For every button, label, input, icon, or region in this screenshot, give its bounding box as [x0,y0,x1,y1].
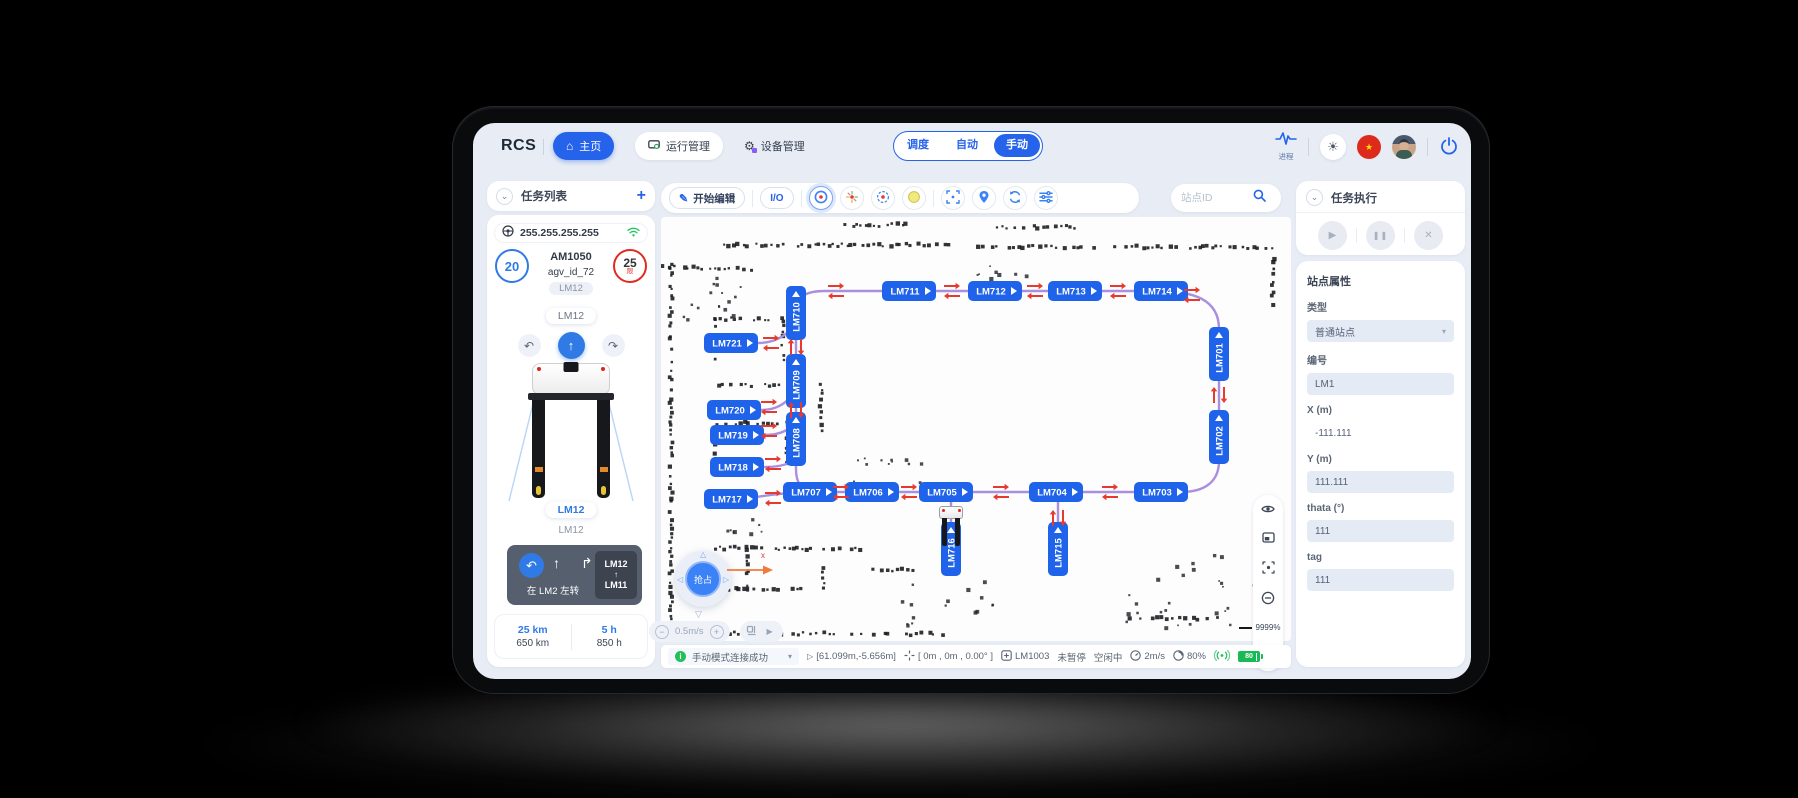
map-wall-dot [719,546,721,548]
svg-text:LM717: LM717 [712,495,742,506]
map-wall-dot [871,568,874,571]
map-wall-dot [873,225,875,227]
path-direction-arrow [828,283,844,290]
map-station-LM714[interactable]: LM714 [1134,281,1188,301]
map-wall-dot [809,633,812,636]
map-wall-dot [724,268,726,270]
pause-state: 未暂停 [1057,650,1086,664]
task-play-button[interactable]: ▶ [1318,221,1347,250]
map-speck [733,531,735,533]
speed-controls: − 0.5m/s + ▶ [649,621,783,642]
joy-left-icon[interactable]: ◁ [677,575,683,584]
gauge-icon [1173,650,1184,664]
action-forward-button[interactable]: ↑ [553,555,560,571]
map-wall-dot [780,316,784,320]
monitor-icon [648,140,660,153]
map-wall-dot [1055,247,1057,249]
map-wall-dot [932,633,934,635]
map-wall-dot [1042,226,1045,229]
map-station-LM719[interactable]: LM719 [710,425,764,445]
map-wall-dot [1054,224,1058,228]
map-speck [718,305,720,307]
map-wall-dot [1214,244,1217,247]
path-direction-arrow [944,293,960,300]
map-wall-dot [670,451,673,454]
status-bar: i 手动模式连接成功 ▾ ▷ [61.099m,-5.656m] [ 0m , … [661,645,1291,668]
filter-button[interactable] [1034,186,1058,210]
tag-field[interactable] [1307,569,1454,591]
map-wall-dot [1038,244,1042,248]
map-wall-dot [1165,617,1169,621]
map-speck [734,296,737,299]
map-wall-dot [896,568,899,571]
map-wall-dot [896,221,900,225]
add-task-button[interactable]: + [637,187,646,205]
map-wall-dot [1272,268,1275,271]
app-logo: RCS [501,137,536,155]
collapse-chevron-icon[interactable]: ⌄ [496,188,513,205]
map-speck [980,596,983,599]
map-wall-dot [670,524,673,527]
map-wall-dot [669,563,672,566]
map-wall-dot [947,243,950,246]
start-edit-button[interactable]: ✎ 开始编辑 [669,187,745,209]
map-wall-dot [836,245,839,248]
forklift-fork-left [532,400,545,498]
map-wall-dot [1171,617,1174,620]
status-message-dropdown[interactable]: i 手动模式连接成功 ▾ [668,648,799,665]
map-wall-dot [1146,246,1149,249]
map-wall-dot [671,361,673,363]
joy-up-icon[interactable]: △ [700,550,706,559]
map-speck [911,622,913,624]
power-button[interactable] [1439,136,1459,159]
path-direction-arrow [798,339,805,355]
map-wall-dot [670,263,673,266]
user-avatar[interactable] [1392,135,1416,159]
map-wall-dot [928,631,932,635]
mode-auto[interactable]: 自动 [956,132,978,159]
path-direction-arrow [993,494,1009,501]
map-wall-dot [750,385,753,388]
map-speck [1164,609,1167,612]
map-wall-dot [782,243,785,246]
process-button[interactable]: 进程 [1275,132,1297,162]
map-speck [978,273,980,275]
map-wall-dot [976,245,980,249]
route-box: LM12 ↑ LM11 [595,551,637,599]
signal-icon [1214,650,1230,664]
map-wall-dot [1169,244,1173,248]
theta-label: thata (°) [1307,503,1454,514]
map-wall-dot [670,615,673,618]
task-list-header: ⌄ 任务列表 + [487,181,655,211]
map-speck [715,277,718,280]
map-station-LM721[interactable]: LM721 [704,333,758,353]
map-wall-dot [669,416,672,419]
map-wall-dot [723,244,725,246]
y-field[interactable] [1307,471,1454,493]
task-exec-chevron-icon[interactable]: ⌄ [1306,189,1323,206]
map-wall-dot [670,527,674,531]
map-wall-dot [1079,245,1082,248]
mode-dispatch[interactable]: 调度 [907,132,929,159]
map-wall-dot [713,452,717,456]
map-speck [730,529,732,531]
map-speck [697,307,700,310]
map-wall-dot [903,222,907,226]
map-wall-dot [783,359,785,361]
svg-text:LM708: LM708 [792,428,803,458]
map-wall-dot [670,555,673,558]
nav-devices-label: 设备管理 [761,138,805,154]
nav-operations[interactable]: 运行管理 [635,132,723,160]
path-direction-arrow [763,345,779,352]
map-speck [715,283,719,287]
map-speck [1189,623,1192,626]
map-speck [910,603,913,606]
map-wall-dot [760,546,763,549]
map-wall-dot [744,383,746,385]
map-wall-dot [1255,246,1258,249]
map-station-LM706[interactable]: LM706 [845,482,899,502]
forklift-body [528,393,614,400]
map-wall-dot [1013,226,1016,229]
map-wall-dot [823,582,825,584]
map-wall-dot [1027,244,1030,247]
io-button[interactable]: I/O [760,187,793,209]
center-focus-icon[interactable] [1262,561,1275,576]
map-station-LM707[interactable]: LM707 [783,482,837,502]
zoom-out-icon[interactable] [1261,591,1275,607]
map-speck [908,463,910,465]
map-station-LM715[interactable]: LM715 [1048,522,1068,576]
speed-plus-button[interactable]: + [710,625,724,639]
map-wall-dot [668,591,672,595]
type-value: 普通站点 [1315,324,1442,339]
theta-field[interactable] [1307,520,1454,542]
map-wall-dot [736,266,740,270]
action-turn-left-button[interactable]: ↶ [519,553,544,578]
map-wall-dot [1131,245,1134,248]
map-station-LM712[interactable]: LM712 [968,281,1022,301]
nav-home-label: 主页 [579,138,601,154]
map-wall-dot [809,547,812,550]
map-wall-dot [917,242,921,246]
vehicle-tag: LM12 [549,282,593,295]
location-pin-icon [978,190,990,207]
svg-text:LM706: LM706 [853,488,883,499]
map-speck [761,531,763,533]
map-wall-dot [714,548,717,551]
rays-layer-icon [845,190,859,207]
map-wall-dot [1142,246,1146,250]
map-wall-dot [762,422,765,425]
map-wall-dot [1046,225,1049,228]
map-wall-dot [780,344,782,346]
map-wall-dot [782,331,785,334]
svg-text:LM721: LM721 [712,339,742,350]
layer-zone-button[interactable] [902,186,926,210]
waveform-icon [1275,132,1297,150]
theme-button[interactable]: ☀ [1320,134,1346,160]
path-direction-arrow [944,283,960,290]
map-wall-dot [670,433,672,435]
tag-label: tag [1307,552,1454,563]
map-wall-dot [776,588,780,592]
map-wall-dot [776,422,779,425]
map-wall-dot [898,243,901,246]
map-wall-dot [996,226,998,228]
map-speck [912,584,914,586]
map-wall-dot [745,244,749,248]
map-wall-dot [740,383,743,386]
map-wall-dot [668,486,672,490]
map-wall-dot [735,242,739,246]
map-wall-dot [1216,616,1219,619]
map-wall-dot [670,274,672,276]
path-direction-arrow [1110,293,1126,300]
map-wall-dot [1072,246,1075,249]
map-wall-dot [764,383,766,385]
station-search-input[interactable] [1181,192,1253,204]
map-station-LM720[interactable]: LM720 [707,400,761,420]
map-wall-dot [767,319,769,321]
map-wall-dot [1189,247,1192,250]
fork-play-button[interactable]: ▶ [763,625,777,639]
battery-circle: 20 [495,249,529,283]
steering-wheel-icon [502,224,514,242]
map-station-LM702[interactable]: LM702 [1209,410,1229,464]
map-wall-dot [838,546,842,550]
map-wall-dot [766,588,768,590]
map-wall-dot [841,243,843,245]
current-station: LM1003 [1001,650,1049,664]
forklift-fork-right [597,400,610,498]
map-wall-dot [756,423,758,425]
map-wall-dot [1194,246,1197,249]
map-wall-dot [670,518,674,522]
map-robot[interactable] [939,506,963,570]
map-wall-dot [1076,246,1079,249]
map-speck [905,458,909,462]
task-stop-button[interactable]: ✕ [1414,221,1443,250]
map-station-LM709[interactable]: LM709 [786,354,806,408]
map-speck [1127,612,1131,616]
id-label: 编号 [1307,352,1454,367]
map-wall-dot [669,306,672,309]
map-speck [977,274,979,276]
map-station-LM705[interactable]: LM705 [919,482,973,502]
map-wall-dot [832,243,834,245]
map-wall-dot [1012,246,1015,249]
map-wall-dot [797,633,800,636]
turn-left-button[interactable]: ↶ [518,334,541,357]
seize-button[interactable]: 抢占 [685,561,721,597]
path-direction-arrow [1102,494,1118,501]
id-field[interactable] [1307,373,1454,395]
map-wall-dot [821,392,824,395]
battery-indicator: 80 [1238,651,1260,662]
svg-text:LM715: LM715 [1054,538,1065,568]
path-direction-arrow [765,456,781,463]
map-wall-dot [670,406,673,409]
map-wall-dot [867,223,871,227]
action-turn-right-button[interactable]: ↱ [581,555,593,572]
map-wall-dot [719,317,722,320]
map-speck [888,463,890,465]
eye-icon[interactable] [1261,504,1275,516]
map-station-LM710[interactable]: LM710 [786,286,806,340]
map-wall-dot [775,547,777,549]
map-speck [1220,582,1223,585]
map-speck [723,308,727,312]
x-field[interactable] [1307,422,1454,444]
map-wall-dot [820,423,824,427]
task-list-title: 任务列表 [521,188,567,204]
map-wall-dot [1065,224,1068,227]
stat-h-current: 5 h [602,624,617,636]
layer-station-button[interactable] [809,186,833,210]
map-speck [966,588,970,592]
map-wall-dot [872,243,875,246]
map-wall-dot [742,587,746,591]
map-wall-dot [819,398,823,402]
map-speck [906,624,909,627]
map-station-LM718[interactable]: LM718 [710,457,764,477]
map-wall-dot [944,243,947,246]
map-wall-dot [807,244,811,248]
viewport: RCS ⌂ 主页 运行管理 ⚙ 设备管理 调度 自动 手动 [0,0,1798,798]
station-props-title: 站点属性 [1307,273,1454,289]
locate-button[interactable] [972,186,996,210]
map-wall-dot [668,571,672,575]
map-wall-dot [1220,245,1222,247]
map-wall-dot [1271,260,1275,264]
minimap-icon[interactable] [1262,532,1275,545]
layer-rays-button[interactable] [840,186,864,210]
map-wall-dot [696,266,699,269]
mode-manual[interactable]: 手动 [994,134,1040,157]
map-wall-dot [671,600,674,603]
map-wall-dot [1031,244,1034,247]
refresh-button[interactable] [1003,186,1027,210]
nav-home[interactable]: ⌂ 主页 [553,132,614,160]
map-wall-dot [915,632,918,635]
map-wall-dot [717,384,721,388]
path-direction-arrow [1110,283,1126,290]
map-station-LM713[interactable]: LM713 [1048,281,1102,301]
map-wall-dot [669,560,672,563]
wifi-icon [627,224,640,242]
task-pause-button[interactable]: ❚❚ [1366,221,1395,250]
topbar-actions: 进程 ☀ ★ [1275,129,1459,165]
speed-value: 0.5m/s [675,626,704,637]
map-wall-dot [859,224,861,226]
turn-right-button[interactable]: ↷ [602,334,625,357]
y-label: Y (m) [1307,454,1454,465]
task-exec-card: ⌄ 任务执行 ▶ ❚❚ ✕ [1296,181,1465,255]
speed-minus-button[interactable]: − [655,625,669,639]
load-readout: 80% [1173,650,1206,664]
stat-km-current: 25 km [518,624,548,636]
layer-ring-button[interactable] [871,186,895,210]
map-wall-dot [795,546,799,550]
map-wall-dot [819,416,822,419]
map-wall-dot [1044,244,1047,247]
map-wall-dot [778,384,781,387]
map-wall-dot [746,585,748,587]
map-speck [989,265,991,267]
map-wall-dot [1205,244,1209,248]
map-speck [1014,273,1017,276]
svg-text:LM710: LM710 [792,302,803,332]
station-text: LM12 [487,525,655,536]
map-wall-dot [661,264,664,268]
map-wall-dot [886,568,890,572]
map-speck [1222,586,1224,588]
map-wall-dot [820,410,823,413]
joy-down-icon[interactable]: ▽ [695,609,702,620]
map-wall-dot [919,631,923,635]
map-station-LM711[interactable]: LM711 [882,281,936,301]
map-speck [1224,610,1226,612]
vehicle-stage [487,363,655,501]
map-wall-dot [1068,225,1071,228]
map-wall-dot [714,325,717,328]
map-station-LM708[interactable]: LM708 [786,412,806,466]
map-wall-dot [853,243,856,246]
type-select[interactable]: 普通站点 ▾ [1307,320,1454,342]
map-wall-dot [670,547,672,549]
pencil-icon: ✎ [679,192,688,205]
nav-devices[interactable]: ⚙ 设备管理 [731,132,818,160]
map-toolbar: ✎ 开始编辑 I/O [661,183,1139,213]
map-wall-dot [1139,617,1141,619]
map-wall-dot [729,545,732,548]
map-wall-dot [880,568,884,572]
path-direction-arrow [901,494,917,501]
map-wall-dot [908,244,911,247]
map-wall-dot [671,297,675,301]
map-wall-dot [668,420,671,423]
drive-controls: ↶ ↑ ↷ [487,332,655,359]
map-wall-dot [746,421,750,425]
map-speck [1125,621,1128,624]
map-wall-dot [757,316,761,320]
speedometer-icon [1130,650,1141,664]
map-wall-dot [1063,246,1067,250]
vehicle-model: AM1050 [533,251,609,263]
map-wall-dot [669,475,672,478]
svg-text:LM707: LM707 [791,488,821,499]
map-wall-dot [669,605,672,608]
map-wall-dot [686,267,688,269]
vehicle-ip-row[interactable]: 255.255.255.255 [494,223,648,243]
map-wall-dot [670,454,674,458]
map-station-LM701[interactable]: LM701 [1209,327,1229,381]
divider [1308,138,1309,156]
map-station-LM704[interactable]: LM704 [1029,482,1083,502]
map-station-LM717[interactable]: LM717 [704,489,758,509]
joystick-pad[interactable]: ◁ ▷ △ 抢占 [675,551,731,607]
map-wall-dot [770,244,772,246]
map-wall-dot [1271,303,1275,307]
forward-button[interactable]: ↑ [558,332,585,359]
fit-view-button[interactable] [941,186,965,210]
map-station-LM703[interactable]: LM703 [1134,482,1188,502]
language-flag-button[interactable]: ★ [1357,135,1381,159]
